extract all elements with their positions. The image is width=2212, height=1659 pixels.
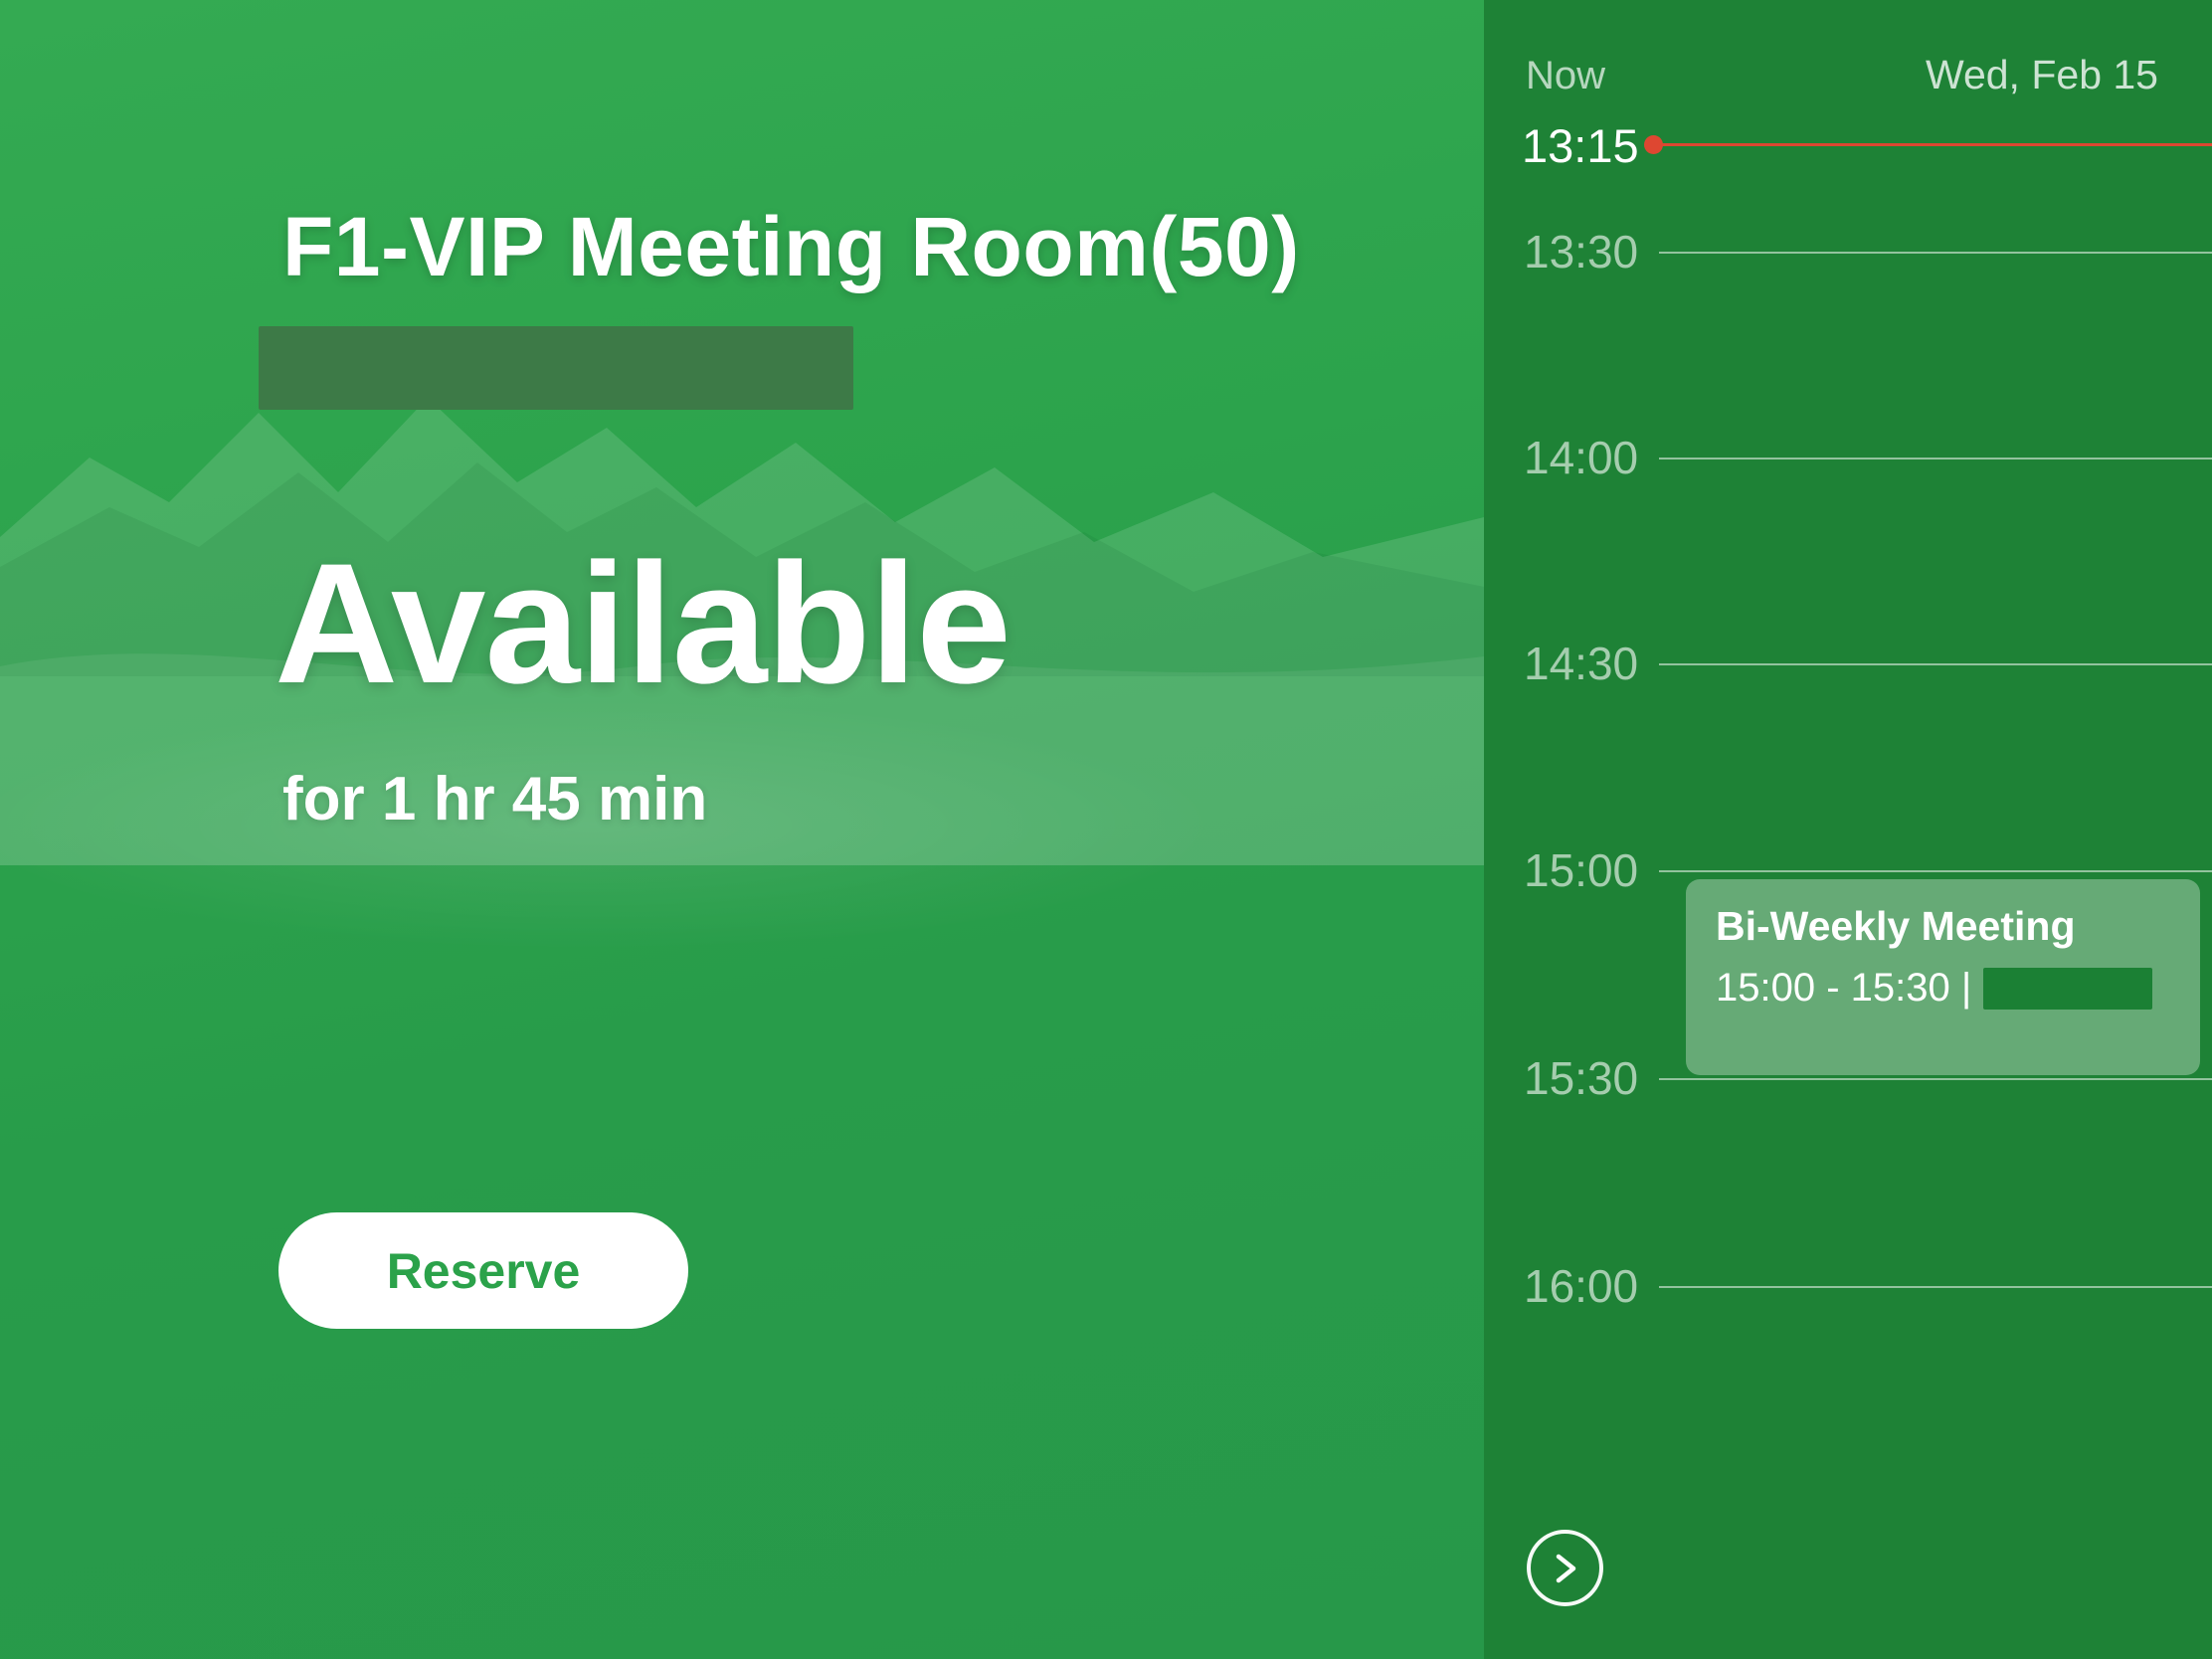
event-card[interactable]: Bi-Weekly Meeting 15:00 - 15:30 | (1686, 879, 2200, 1075)
redacted-room-info (259, 326, 853, 410)
time-slot-label: 14:30 (1524, 638, 1638, 689)
grid-line (1659, 252, 2212, 254)
grid-line (1659, 870, 2212, 872)
event-time-text: 15:00 - 15:30 | (1716, 966, 1971, 1010)
reserve-button[interactable]: Reserve (278, 1212, 688, 1329)
chevron-right-icon (1546, 1545, 1585, 1592)
now-label: Now (1526, 54, 1605, 98)
redacted-organizer-name (1983, 968, 2152, 1010)
grid-line (1659, 458, 2212, 460)
time-slot-label: 13:30 (1524, 226, 1638, 277)
room-name-title: F1-VIP Meeting Room(50) (282, 199, 1300, 295)
availability-duration: for 1 hr 45 min (282, 764, 707, 834)
event-title: Bi-Weekly Meeting (1716, 903, 2200, 950)
time-slot-label: 16:00 (1524, 1260, 1638, 1312)
current-time-label: 13:15 (1522, 118, 1639, 173)
availability-status: Available (275, 525, 1011, 722)
time-slot-label: 15:30 (1524, 1052, 1638, 1104)
grid-line (1659, 1286, 2212, 1288)
next-page-button[interactable] (1527, 1530, 1603, 1606)
time-slot-label: 14:00 (1524, 432, 1638, 483)
time-slot-label: 15:00 (1524, 844, 1638, 896)
grid-line (1659, 1078, 2212, 1080)
schedule-timeline-panel: Now Wed, Feb 15 13:15 13:30 14:00 14:30 … (1484, 0, 2212, 1659)
grid-line (1659, 663, 2212, 665)
room-display-screen: F1-VIP Meeting Room(50) Available for 1 … (0, 0, 2212, 1659)
current-time-line (1659, 143, 2212, 146)
date-label: Wed, Feb 15 (1926, 52, 2158, 98)
event-time-range: 15:00 - 15:30 | (1716, 966, 2200, 1011)
room-status-panel: F1-VIP Meeting Room(50) Available for 1 … (0, 0, 1484, 1659)
